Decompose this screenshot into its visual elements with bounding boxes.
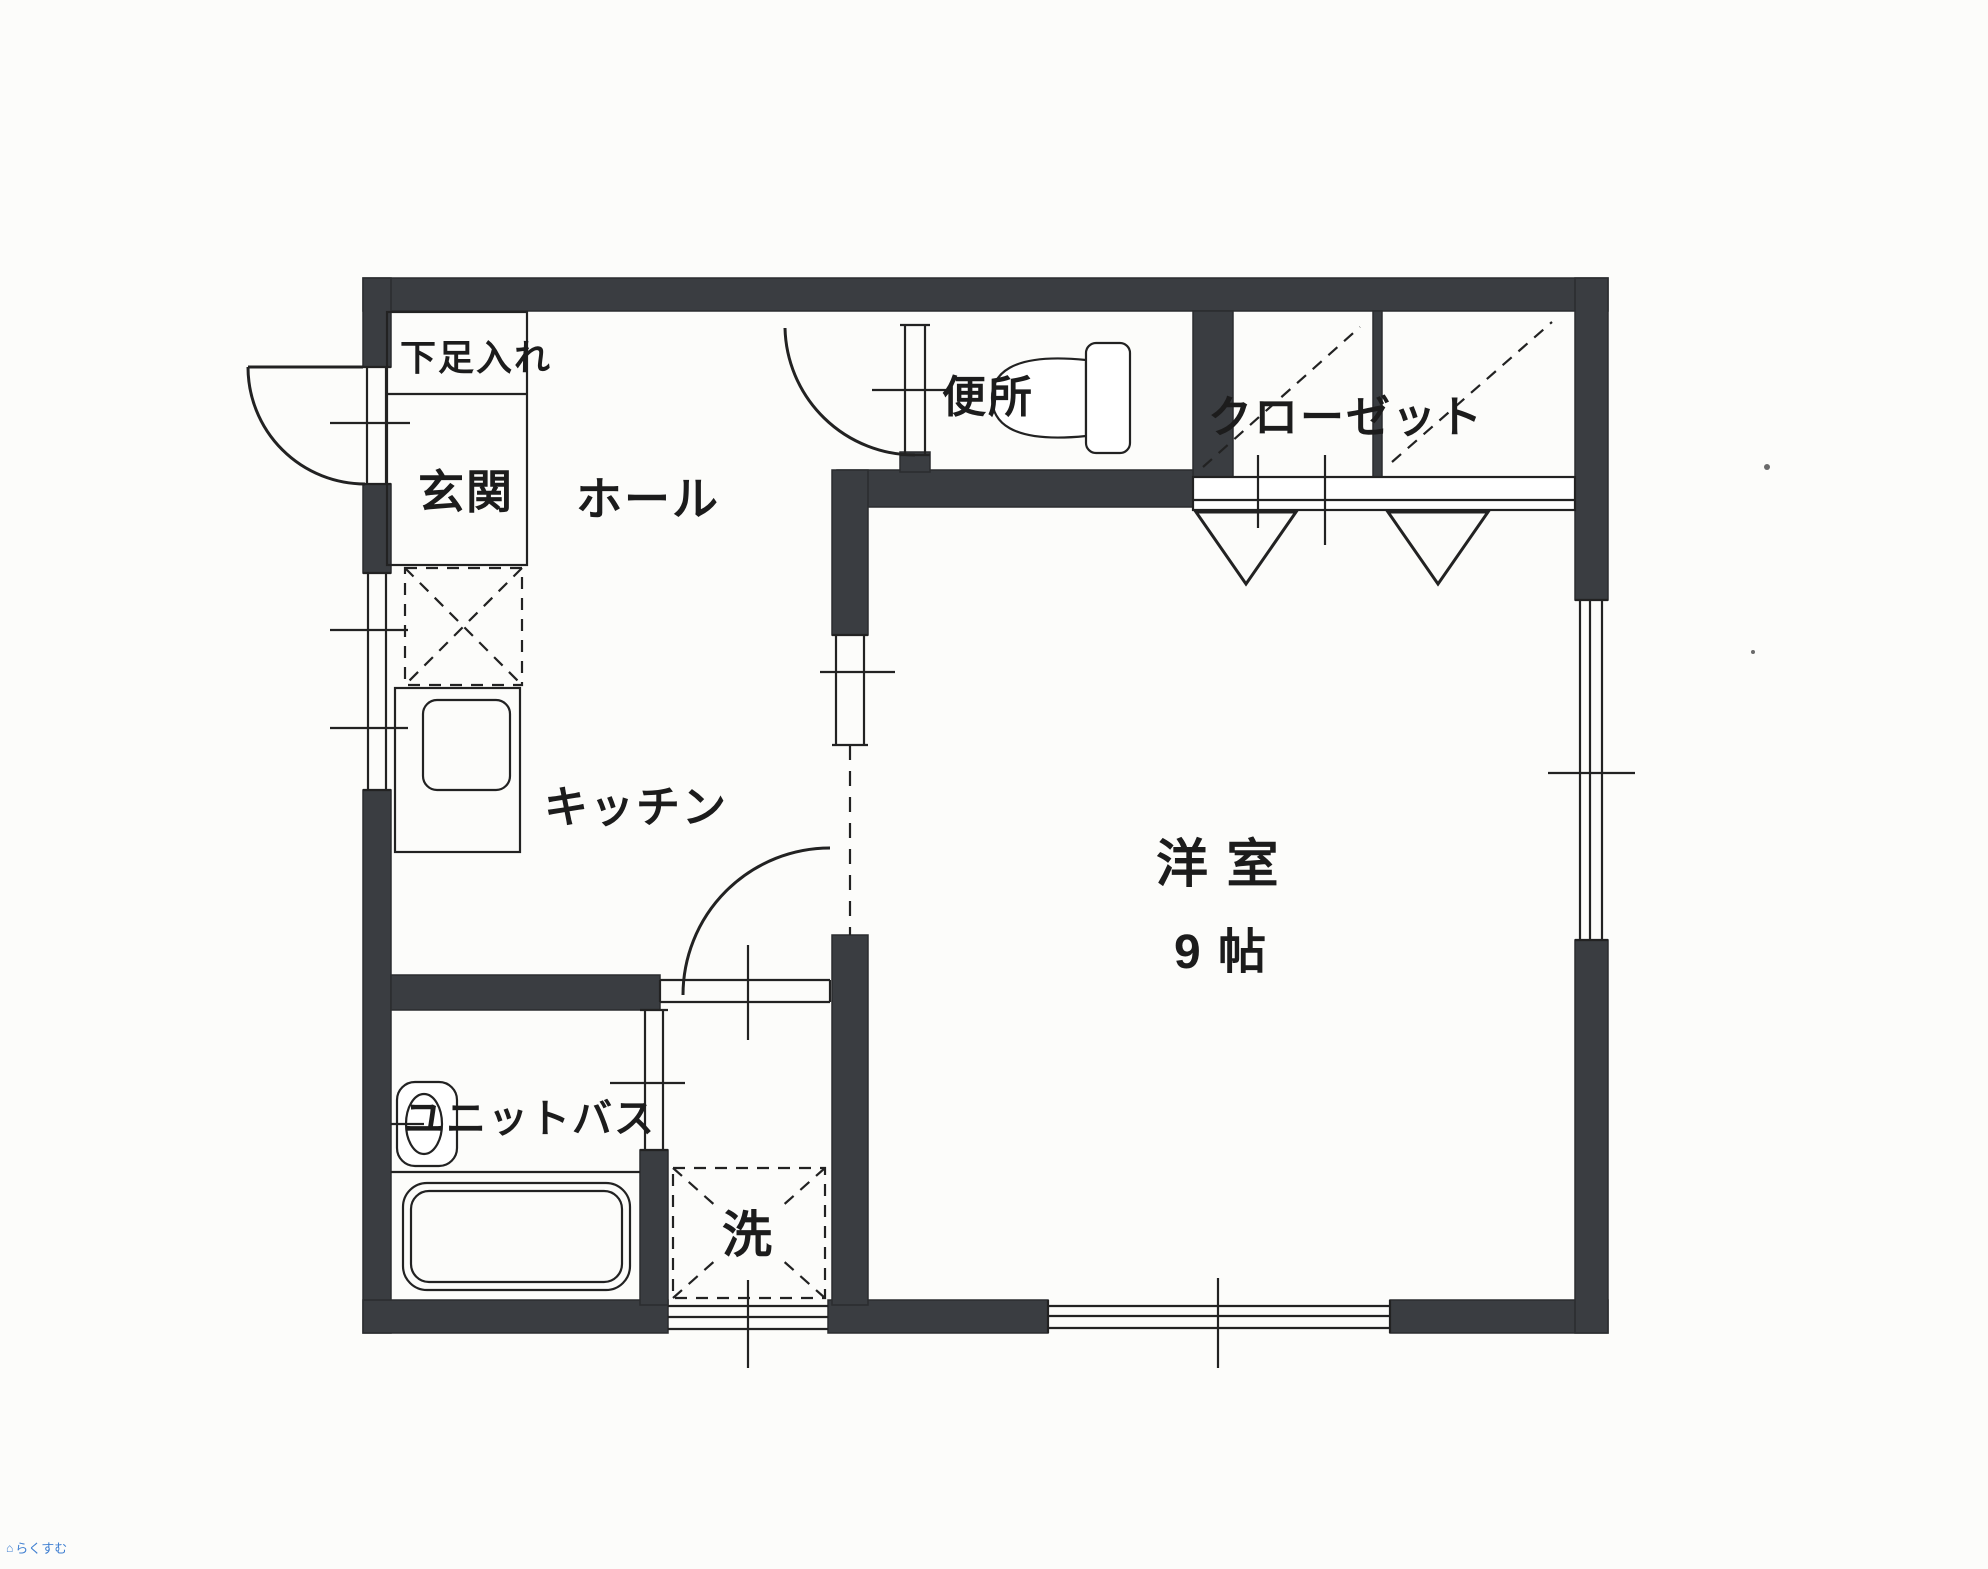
- closet-folding-door: [1193, 322, 1575, 584]
- label-toilet: 便所: [942, 373, 1034, 422]
- scan-speckle: [1751, 650, 1755, 654]
- kitchen-sink: [423, 700, 510, 790]
- label-shoe-storage: 下足入れ: [400, 337, 552, 378]
- wall-bottom-left: [363, 1300, 668, 1333]
- wall-divider-upper: [832, 470, 868, 635]
- label-western-room-size: 9 帖: [1174, 926, 1268, 979]
- window-left: [330, 573, 408, 790]
- wall-below-toilet: [837, 470, 1193, 507]
- entrance-door: [248, 367, 410, 484]
- window-bottom-washroom: [668, 1280, 828, 1368]
- label-unit-bath: ユニットバス: [404, 1097, 656, 1141]
- house-icon: ⌂: [6, 1542, 13, 1554]
- wall-right-lower: [1575, 940, 1608, 1333]
- wall-left-lower: [363, 790, 391, 1333]
- washroom-door: [660, 848, 830, 1040]
- label-hall: ホール: [576, 473, 720, 525]
- toilet-door-swing-arc: [785, 328, 915, 455]
- washroom-door-swing-arc: [683, 848, 830, 995]
- label-entrance: 玄関: [418, 466, 514, 518]
- western-room-doorway: [820, 635, 895, 935]
- watermark-text: らくすむ: [15, 1538, 67, 1557]
- folding-door-triangle: [1388, 512, 1488, 584]
- interior-walls: [391, 311, 1382, 1305]
- bathtub-inner: [411, 1191, 622, 1282]
- label-kitchen: キッチン: [544, 783, 728, 832]
- window-right: [1548, 600, 1635, 940]
- wall-kitchen-south: [391, 975, 660, 1010]
- wall-right-upper: [1575, 278, 1608, 600]
- folding-door-triangle: [1196, 512, 1296, 584]
- toilet-tank: [1086, 343, 1130, 453]
- bathtub: [403, 1183, 630, 1290]
- entrance-door-swing-arc: [248, 367, 365, 484]
- floorplan-page: 下足入れ 玄関 ホール キッチン 便所 クローゼット 洋 室 9 帖 ユニットバ…: [0, 0, 1988, 1569]
- closet-door-track: [1193, 477, 1575, 510]
- window-bottom-main: [1048, 1278, 1390, 1368]
- scan-speckle: [1764, 464, 1770, 470]
- wall-divider-lower: [832, 935, 868, 1305]
- toilet-door: [785, 325, 948, 455]
- wall-bath-east: [640, 1150, 668, 1305]
- label-closet: クローゼット: [1208, 393, 1484, 442]
- label-laundry: 洗: [722, 1207, 774, 1263]
- kitchen-counter: [395, 688, 520, 852]
- floorplan-drawing: 下足入れ 玄関 ホール キッチン 便所 クローゼット 洋 室 9 帖 ユニットバ…: [0, 0, 1988, 1569]
- label-western-room: 洋 室: [1156, 836, 1280, 894]
- kitchen-fixtures: [395, 568, 522, 852]
- watermark: ⌂ らくすむ: [6, 1538, 67, 1557]
- wall-top: [363, 278, 1608, 311]
